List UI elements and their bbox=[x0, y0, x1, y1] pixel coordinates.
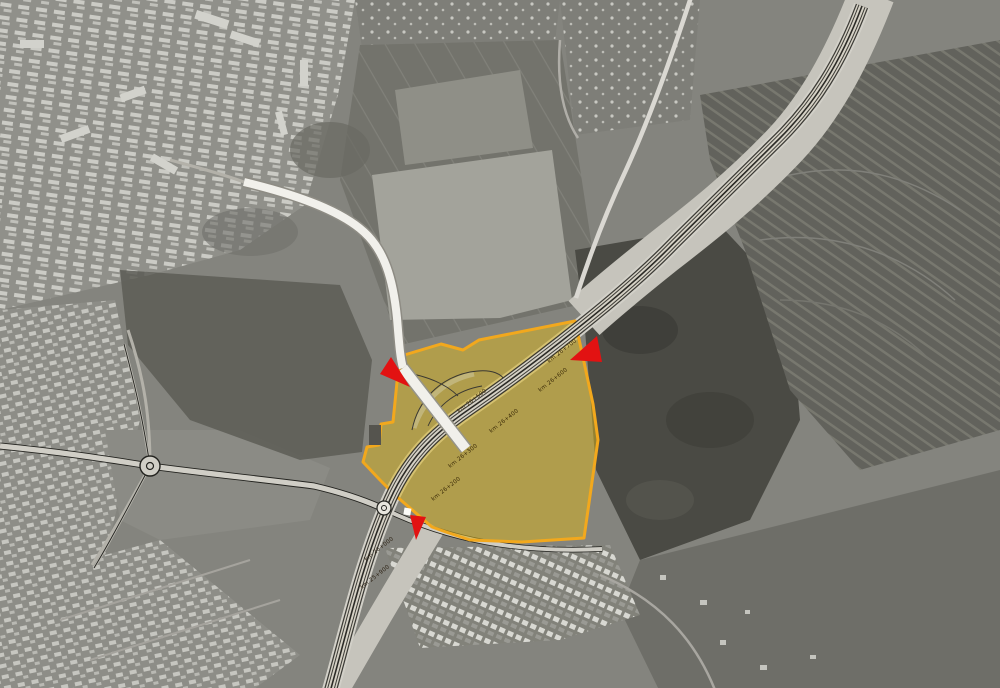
woods-patch bbox=[202, 208, 298, 256]
forest-blob bbox=[626, 480, 694, 520]
forest-blob bbox=[666, 392, 754, 448]
light-field-patch bbox=[372, 150, 572, 320]
map-canvas: km 26+700 km 26+600 km 26+500 km 26+400 … bbox=[0, 0, 1000, 688]
aerial-planning-map: km 26+700 km 26+600 km 26+500 km 26+400 … bbox=[0, 0, 1000, 688]
excluded-building bbox=[369, 425, 381, 445]
village-area-northeast bbox=[560, 0, 700, 135]
woods-patch bbox=[290, 122, 370, 178]
boundary-corner-marker bbox=[403, 508, 411, 516]
